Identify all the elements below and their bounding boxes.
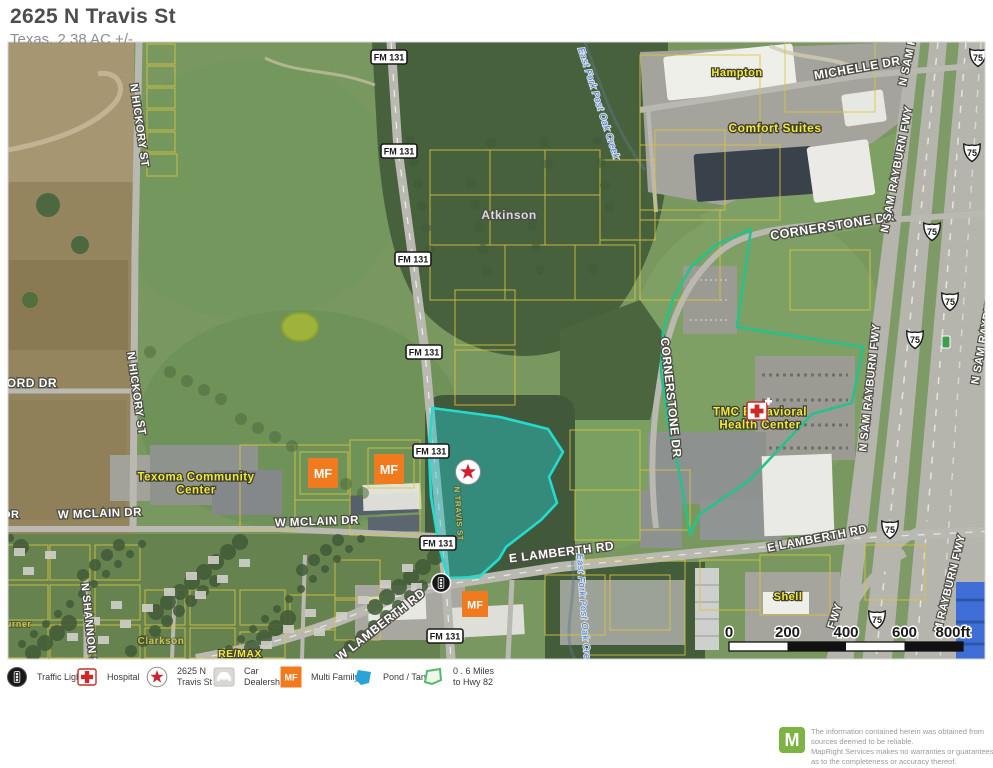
map-canvas[interactable]: MICHELLE DRCORNERSTONE DRCORNERSTONE DRN… xyxy=(0,0,993,768)
svg-text:800ft: 800ft xyxy=(935,624,970,641)
map-imagery: MICHELLE DRCORNERSTONE DRCORNERSTONE DRN… xyxy=(0,36,993,673)
fm-131-shield: FM 131 xyxy=(371,50,407,64)
svg-text:FM 131: FM 131 xyxy=(416,447,447,457)
poi-label: Comfort Suites xyxy=(728,121,821,135)
svg-text:75: 75 xyxy=(885,525,895,535)
fm-131-shield: FM 131 xyxy=(420,536,456,550)
traffic-light-marker[interactable] xyxy=(432,574,451,593)
svg-text:75: 75 xyxy=(945,297,955,307)
multi-family-icon: MF xyxy=(280,666,302,688)
legend-item-traffic-light: Traffic Light xyxy=(6,666,84,688)
star-icon xyxy=(146,666,168,688)
road-label: DR xyxy=(3,509,20,521)
legend-item-hwy-distance: 0 . 6 Miles to Hwy 82 xyxy=(422,666,494,688)
legend-label: 0 . 6 Miles to Hwy 82 xyxy=(453,666,494,688)
legend-label: Hospital xyxy=(107,672,140,683)
disclaimer-text: The information contained herein was obt… xyxy=(811,727,993,768)
poi-label: RE/MAX xyxy=(218,648,262,660)
svg-text:MF: MF xyxy=(285,673,298,683)
page-title: 2625 N Travis St xyxy=(10,5,176,29)
svg-text:75: 75 xyxy=(872,615,882,625)
hospital-icon xyxy=(76,666,98,688)
page: 2625 N Travis St Texas, 2.38 AC +/- xyxy=(0,0,993,768)
svg-text:MF: MF xyxy=(467,599,483,611)
fm-131-shield: FM 131 xyxy=(395,252,431,266)
page-subtitle: Texas, 2.38 AC +/- xyxy=(10,31,176,48)
subject-lot-star-marker[interactable] xyxy=(456,460,481,485)
multi-family-marker[interactable]: MF xyxy=(462,591,488,617)
poi-label: Turner xyxy=(1,619,32,629)
poi-label: Shell xyxy=(774,591,803,603)
hwy-distance-icon xyxy=(422,666,444,688)
legend-item-hospital: Hospital xyxy=(76,666,140,688)
disclaimer: M The information contained herein was o… xyxy=(779,727,993,768)
svg-text:0: 0 xyxy=(725,624,733,641)
svg-text:600: 600 xyxy=(892,624,917,641)
svg-text:75: 75 xyxy=(910,335,920,345)
svg-text:75: 75 xyxy=(967,148,977,158)
map-legend: Traffic LightHospital2625 N Travis St Lo… xyxy=(0,662,540,704)
svg-text:FM 131: FM 131 xyxy=(374,53,405,63)
svg-text:FM 131: FM 131 xyxy=(430,632,461,642)
multi-family-marker[interactable]: MF xyxy=(308,458,338,488)
map-header: 2625 N Travis St Texas, 2.38 AC +/- xyxy=(10,5,176,48)
road-label: FORD DR xyxy=(0,376,57,390)
svg-text:FM 131: FM 131 xyxy=(423,539,454,549)
fm-131-shield: FM 131 xyxy=(413,444,449,458)
traffic-light-icon xyxy=(6,666,28,688)
svg-text:400: 400 xyxy=(833,624,858,641)
car-dealership-icon xyxy=(213,666,235,688)
svg-text:FM 131: FM 131 xyxy=(398,255,429,265)
svg-text:MF: MF xyxy=(314,467,332,481)
fm-131-shield: FM 131 xyxy=(406,345,442,359)
svg-text:200: 200 xyxy=(775,624,800,641)
svg-text:75: 75 xyxy=(973,53,983,63)
poi-label: Clarkson xyxy=(138,636,185,647)
fm-131-shield: FM 131 xyxy=(381,144,417,158)
fm-131-shield: FM 131 xyxy=(427,629,463,643)
svg-text:FM 131: FM 131 xyxy=(384,147,415,157)
legend-item-pond: Pond / Tank xyxy=(352,666,430,688)
legend-item-multi-family: MFMulti Family xyxy=(280,666,359,688)
poi-label: Atkinson xyxy=(481,208,536,222)
legend-item-car-dealership: Car Dealership xyxy=(213,666,287,688)
svg-text:MF: MF xyxy=(380,463,398,477)
svg-text:75: 75 xyxy=(927,227,937,237)
svg-text:FM 131: FM 131 xyxy=(409,348,440,358)
multi-family-marker[interactable]: MF xyxy=(374,454,404,484)
poi-label: Hampton xyxy=(711,67,762,79)
pond-icon xyxy=(352,666,374,688)
mapright-logo: M xyxy=(779,727,805,753)
mile-marker xyxy=(942,336,950,348)
